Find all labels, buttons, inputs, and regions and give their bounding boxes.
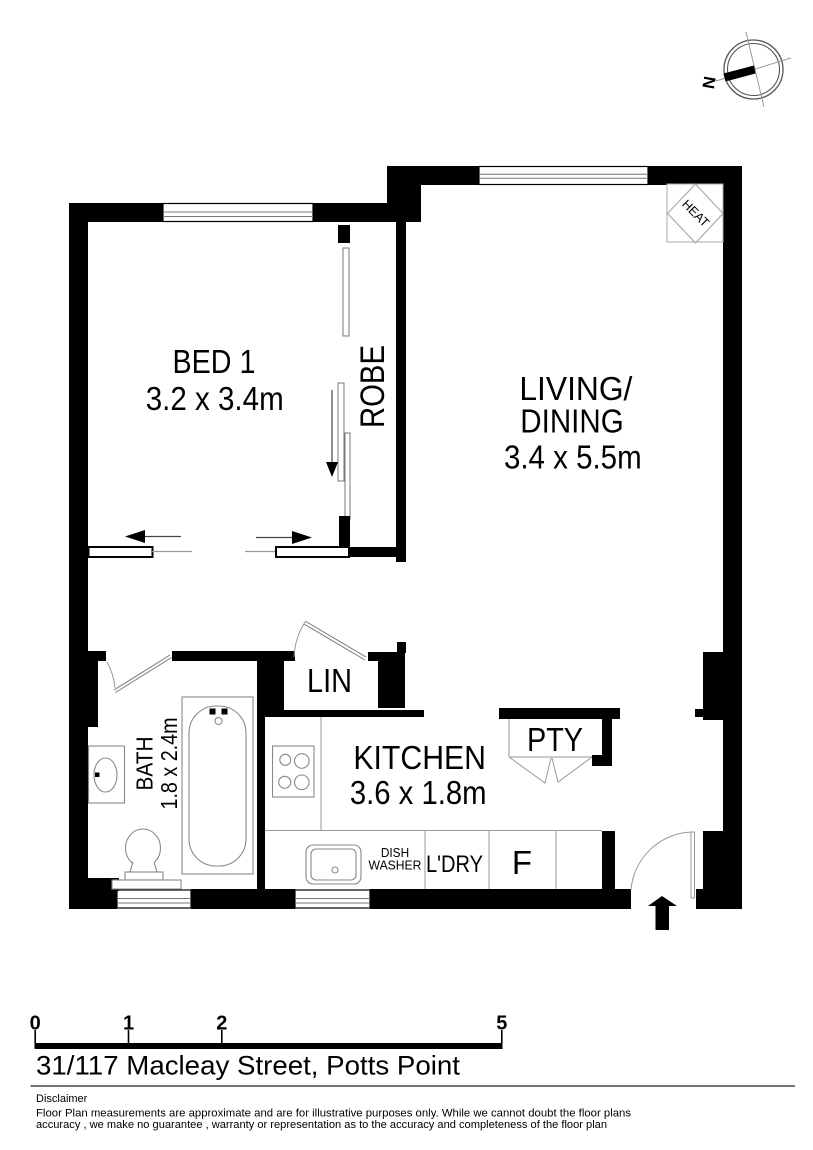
svg-text:F: F: [512, 844, 532, 881]
svg-text:3.4 x 5.5m: 3.4 x 5.5m: [504, 439, 642, 476]
svg-text:PTY: PTY: [527, 721, 583, 758]
svg-text:3.2 x 3.4m: 3.2 x 3.4m: [146, 380, 284, 417]
svg-text:BATH: BATH: [131, 737, 157, 791]
svg-text:L'DRY: L'DRY: [426, 851, 483, 878]
svg-text:Floor Plan measurements are ap: Floor Plan measurements are approximate …: [36, 1107, 632, 1119]
svg-text:1.8 x 2.4m: 1.8 x 2.4m: [156, 718, 182, 810]
svg-text:LIVING/: LIVING/: [519, 370, 633, 407]
svg-text:BED 1: BED 1: [173, 343, 256, 380]
svg-text:WASHER: WASHER: [369, 859, 422, 873]
svg-text:31/117 Macleay Street, Potts P: 31/117 Macleay Street, Potts Point: [36, 1051, 461, 1081]
svg-text:DINING: DINING: [520, 403, 623, 440]
svg-text:LIN: LIN: [307, 662, 352, 699]
svg-text:ROBE: ROBE: [354, 345, 392, 428]
svg-text:3.6 x 1.8m: 3.6 x 1.8m: [350, 774, 487, 811]
svg-text:KITCHEN: KITCHEN: [353, 739, 486, 776]
svg-text:Disclaimer: Disclaimer: [36, 1093, 88, 1105]
svg-text:accuracy , we make no guarante: accuracy , we make no guarantee , warran…: [36, 1119, 607, 1131]
